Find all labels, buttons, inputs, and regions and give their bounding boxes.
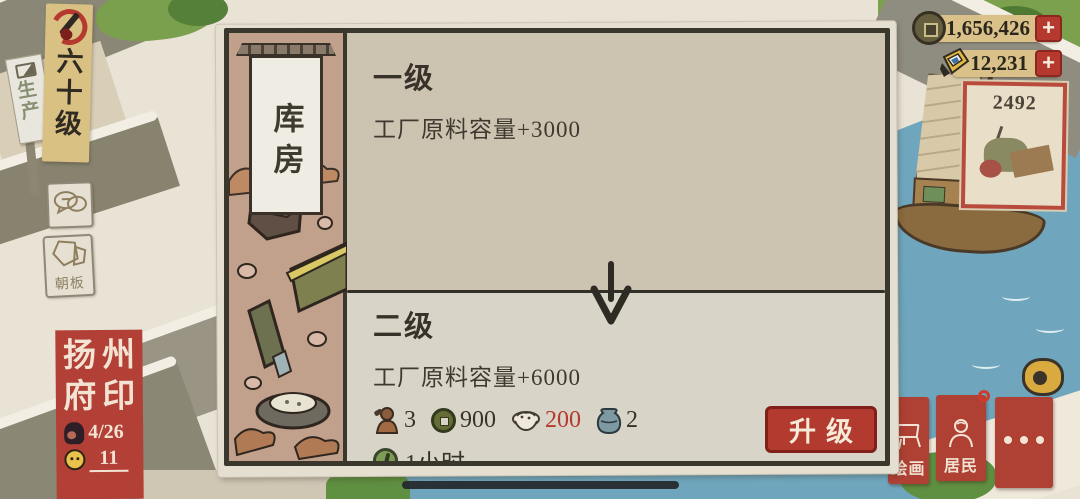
coin-icon xyxy=(431,408,456,433)
seal-char: 州 xyxy=(99,336,138,377)
poster-painting-figure xyxy=(979,159,1001,177)
water-wave xyxy=(972,360,1000,369)
warehouse-upgrade-dialog: 库房 一级 工厂原料容量+3000 二级 工厂原料容量+6000 xyxy=(217,23,897,475)
chaoban-icon xyxy=(47,236,91,274)
chaoban-label: 朝板 xyxy=(47,277,94,293)
player-level-label: 六十级 xyxy=(47,47,88,141)
more-button[interactable] xyxy=(995,397,1053,488)
chat-button[interactable] xyxy=(46,181,94,229)
rice-bowl-icon xyxy=(511,408,541,432)
water-wave xyxy=(1036,324,1064,333)
cost-rice-value: 200 xyxy=(545,407,581,434)
add-copper-button[interactable]: + xyxy=(1035,15,1062,42)
ellipsis-icon xyxy=(1004,436,1044,444)
cost-coins-value: 900 xyxy=(460,407,496,434)
cost-workers: 3 xyxy=(373,406,416,434)
residents-button[interactable]: 居民 xyxy=(936,395,986,481)
notes-currency: 12,231 + xyxy=(952,50,1060,77)
gifts-count: 11 xyxy=(89,447,128,472)
cost-pouch: 2 xyxy=(596,407,638,434)
water-wave xyxy=(1002,292,1030,301)
dialog-illustration-panel: 库房 xyxy=(229,33,347,461)
upgrade-button[interactable]: 升级 xyxy=(765,406,877,453)
copper-coin-icon xyxy=(912,11,946,45)
seal-char: 府 xyxy=(60,377,99,418)
brush-icon xyxy=(51,9,88,46)
cost-rice: 200 xyxy=(511,407,581,434)
game-screen: 2492 生产 六十级 xyxy=(0,0,1080,499)
add-notes-button[interactable]: + xyxy=(1035,50,1062,77)
upgrade-time: 1小时 xyxy=(405,443,465,466)
gifts-row[interactable]: 11 xyxy=(56,447,143,473)
tasks-row[interactable]: 4/26 xyxy=(56,421,143,445)
poster-number: 2492 xyxy=(967,91,1063,116)
dialog-title-scroll: 库房 xyxy=(245,43,327,219)
seal-char: 印 xyxy=(99,377,138,418)
gold-face-icon xyxy=(64,449,85,470)
city-seal[interactable]: 扬 州 府 印 4/26 11 xyxy=(55,330,143,499)
chaoban-button[interactable]: 朝板 xyxy=(42,234,95,299)
copper-currency: 1,656,426 + xyxy=(928,15,1060,42)
down-arrow-icon xyxy=(589,261,633,327)
notification-dot xyxy=(978,390,990,402)
resident-icon xyxy=(946,417,976,449)
cost-workers-value: 3 xyxy=(404,407,416,434)
worker-icon xyxy=(373,406,400,434)
painting-desk-icon xyxy=(896,421,922,451)
cost-pouch-value: 2 xyxy=(626,407,638,434)
notes-icon xyxy=(938,47,970,79)
tasks-count: 4/26 xyxy=(88,421,124,444)
npc-icon xyxy=(64,422,84,444)
player-level-banner[interactable]: 六十级 xyxy=(42,3,93,162)
city-seal-title: 扬 州 府 印 xyxy=(60,336,139,419)
residents-label: 居民 xyxy=(944,452,978,476)
current-level-heading: 一级 xyxy=(373,55,885,97)
current-level-effect: 工厂原料容量+3000 xyxy=(373,110,885,144)
next-level-effect: 工厂原料容量+6000 xyxy=(373,358,885,392)
scroll-body: 库房 xyxy=(249,55,323,215)
dialog-frame: 库房 一级 工厂原料容量+3000 二级 工厂原料容量+6000 xyxy=(224,28,890,466)
seal-char: 扬 xyxy=(60,336,99,377)
time-icon xyxy=(373,448,398,466)
production-icon xyxy=(14,62,36,79)
dialog-title: 库房 xyxy=(264,102,309,212)
gold-bell-icon[interactable] xyxy=(1022,358,1064,396)
cost-coins: 900 xyxy=(431,407,496,434)
dialog-content: 一级 工厂原料容量+3000 二级 工厂原料容量+6000 xyxy=(347,33,885,461)
chat-icon xyxy=(49,183,90,224)
boat-window xyxy=(923,186,946,203)
pouch-icon xyxy=(596,407,622,434)
production-label: 生产 xyxy=(10,78,44,124)
current-level-section: 一级 工厂原料容量+3000 xyxy=(347,33,885,291)
sail-poster[interactable]: 2492 xyxy=(961,81,1067,210)
home-indicator[interactable] xyxy=(402,481,679,489)
